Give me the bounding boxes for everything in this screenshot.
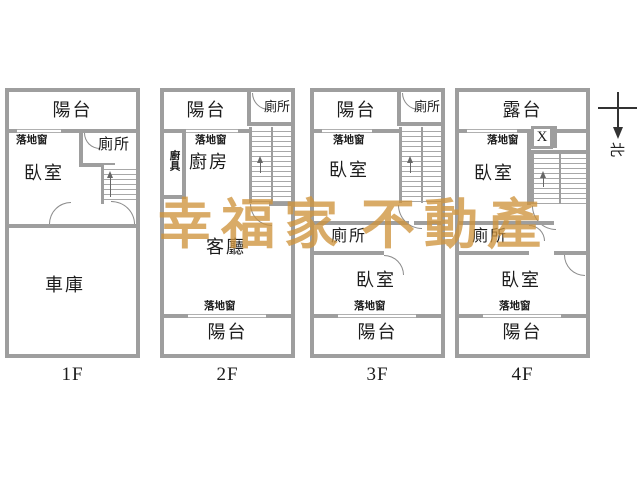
room-label-bedroom-bottom: 臥室 [499, 271, 543, 289]
stair-arrow-icon [543, 175, 544, 187]
watermark-part1: 幸福家 [158, 195, 347, 255]
room-label-garage: 車庫 [25, 276, 105, 294]
window-line [17, 129, 61, 133]
staircase [399, 127, 441, 203]
room-label-window-top: 落地窗 [333, 136, 365, 147]
room-label-bedroom-bottom: 臥室 [354, 271, 398, 289]
window-line [188, 314, 266, 318]
north-arrow-crossbar [598, 107, 637, 109]
room-label-balcony-bottom: 陽台 [164, 323, 291, 341]
room-label-balcony-top: 陽台 [169, 101, 244, 119]
wall [247, 92, 251, 126]
north-arrow-shaft [617, 92, 619, 128]
floorplan-1f: 陽台 落地窗 廁所 臥室 車庫 [5, 88, 140, 358]
room-label-bedroom-top: 臥室 [471, 164, 517, 182]
room-label-terrace: 露台 [459, 101, 586, 119]
wall [247, 122, 291, 126]
room-label-toilet: 廁所 [93, 138, 135, 153]
floor-label-3f: 3F [310, 364, 445, 386]
window-line [322, 129, 372, 133]
room-label-balcony: 陽台 [9, 101, 136, 119]
window-line [467, 129, 517, 133]
wall [397, 92, 401, 126]
watermark-part2: 不動產 [361, 195, 550, 255]
room-label-window: 落地窗 [16, 136, 48, 147]
stair-treads [273, 127, 292, 203]
room-label-bedroom: 臥室 [21, 164, 67, 182]
stair-treads [402, 127, 421, 203]
stair-treads [423, 127, 442, 203]
wall [553, 126, 557, 148]
window-line [483, 314, 561, 318]
void-mark-label: X [537, 129, 548, 146]
north-label: 北 [607, 142, 628, 157]
stair-treads [561, 154, 586, 204]
door-arc [564, 255, 585, 276]
wall [79, 129, 83, 167]
void-mark-box: X [531, 126, 553, 149]
floor-label-1f: 1F [5, 364, 140, 386]
wall [182, 133, 186, 199]
room-label-balcony-bottom: 陽台 [459, 323, 586, 341]
room-label-toilet-top: 廁所 [413, 100, 441, 113]
room-label-kitchen: 廚房 [188, 153, 230, 171]
wall [397, 122, 441, 126]
door-arc [111, 201, 135, 224]
room-label-window-bottom: 落地窗 [499, 302, 531, 313]
room-label-window-bottom: 落地窗 [204, 302, 236, 313]
room-label-balcony-top: 陽台 [319, 101, 394, 119]
floor-label-4f: 4F [455, 364, 590, 386]
stair-arrow-icon [410, 160, 411, 173]
watermark: 幸福家不動產 [158, 198, 550, 252]
room-label-balcony-bottom: 陽台 [314, 323, 441, 341]
wall [9, 224, 136, 228]
room-label-toilet: 廁所 [263, 100, 291, 113]
room-label-window-top: 落地窗 [487, 136, 519, 147]
window-line [186, 129, 238, 133]
room-label-cabinet: 廚具 [168, 150, 179, 171]
stair-arrow-icon [260, 160, 261, 173]
stair-up-arrow-icon [110, 175, 111, 197]
window-line [338, 314, 416, 318]
floorplan-canvas: 陽台 落地窗 廁所 臥室 車庫 陽台 廁所 落地窗 廚具 廚房 [0, 0, 640, 480]
stair-treads [252, 127, 271, 203]
room-label-bedroom-top: 臥室 [326, 161, 372, 179]
door-arc [49, 202, 71, 224]
room-label-window-top: 落地窗 [195, 136, 227, 147]
staircase [249, 127, 291, 203]
room-label-window-bottom: 落地窗 [354, 302, 386, 313]
floor-label-2f: 2F [160, 364, 295, 386]
